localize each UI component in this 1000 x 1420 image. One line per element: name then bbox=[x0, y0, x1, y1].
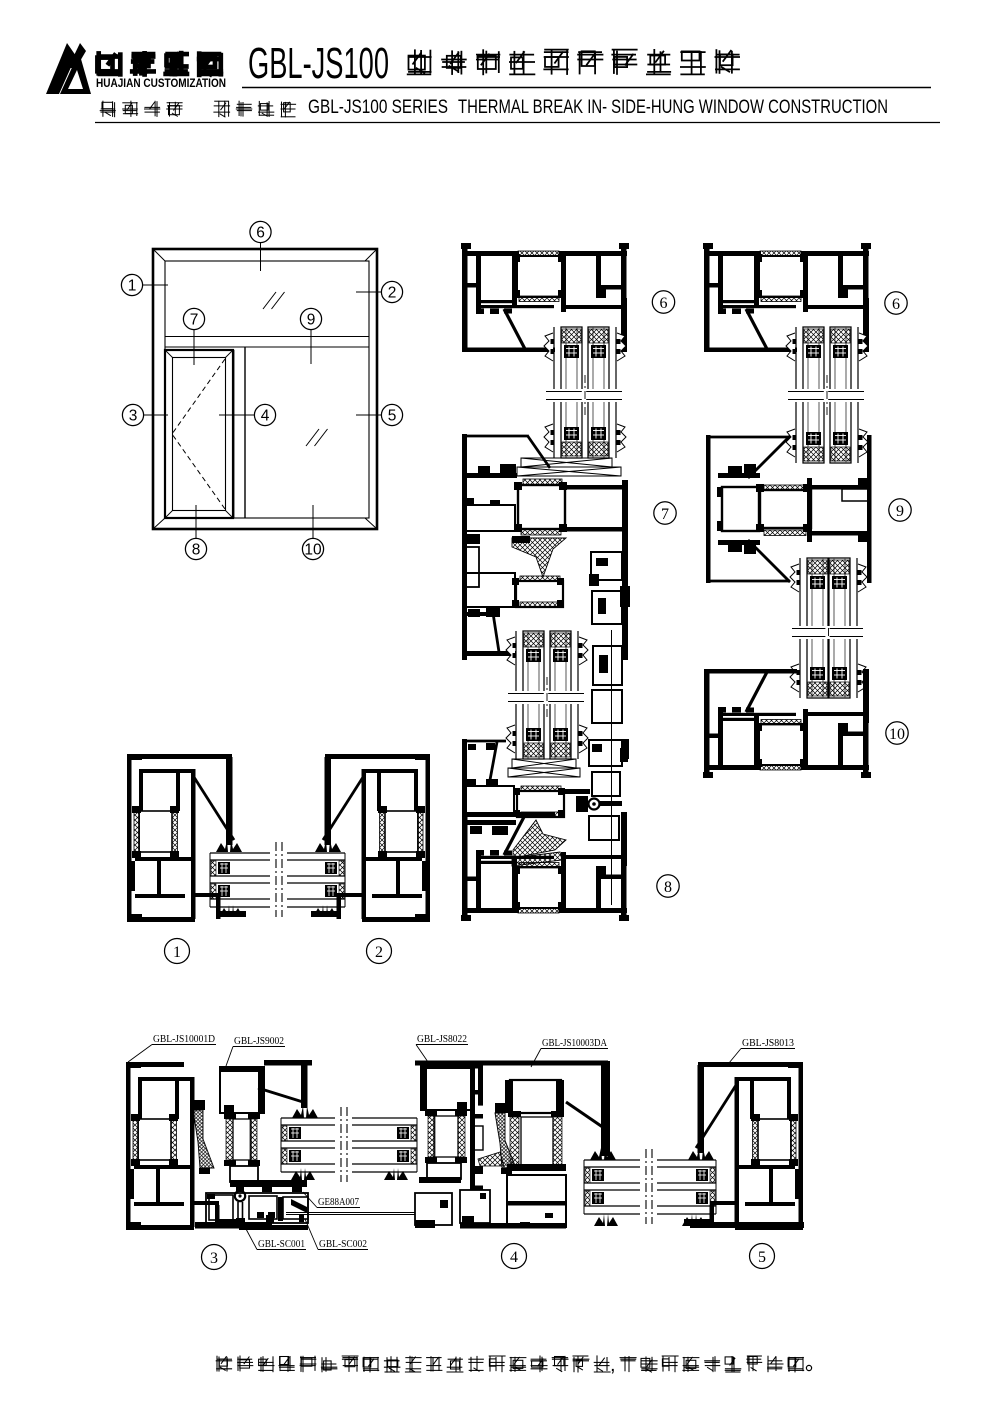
svg-text:GBL-JS9002: GBL-JS9002 bbox=[234, 1036, 284, 1047]
svg-text:5: 5 bbox=[758, 1249, 766, 1266]
svg-text:6: 6 bbox=[256, 224, 265, 241]
svg-text:3: 3 bbox=[210, 1250, 218, 1267]
svg-text:2: 2 bbox=[388, 284, 397, 301]
svg-text:4: 4 bbox=[261, 407, 270, 424]
svg-text:GBL-JS8022: GBL-JS8022 bbox=[417, 1034, 467, 1045]
svg-text:GBL-JS10003DA: GBL-JS10003DA bbox=[542, 1038, 607, 1049]
svg-text:,: , bbox=[610, 1354, 616, 1376]
svg-text:GBL-JS100 SERIES: GBL-JS100 SERIES bbox=[308, 97, 448, 118]
svg-text:10: 10 bbox=[304, 541, 322, 558]
svg-text:8: 8 bbox=[192, 541, 201, 558]
svg-text:2: 2 bbox=[375, 944, 383, 961]
svg-text:8: 8 bbox=[664, 879, 672, 896]
svg-text:5: 5 bbox=[388, 407, 397, 424]
svg-text:4: 4 bbox=[510, 1249, 518, 1266]
svg-text:GE88A007: GE88A007 bbox=[318, 1197, 359, 1208]
svg-text:GBL-JS100: GBL-JS100 bbox=[248, 39, 389, 88]
svg-text:GBL-JS8013: GBL-JS8013 bbox=[742, 1038, 794, 1049]
svg-text:1: 1 bbox=[173, 944, 181, 961]
svg-text:1: 1 bbox=[128, 277, 137, 294]
svg-text:3: 3 bbox=[129, 407, 138, 424]
svg-text:GBL-SC001: GBL-SC001 bbox=[258, 1239, 305, 1250]
svg-text:HUAJIAN CUSTOMIZATION: HUAJIAN CUSTOMIZATION bbox=[96, 78, 226, 90]
svg-text:10: 10 bbox=[889, 726, 905, 743]
svg-text:THERMAL BREAK IN- SIDE-HUNG WI: THERMAL BREAK IN- SIDE-HUNG WINDOW CONST… bbox=[458, 97, 888, 118]
svg-text:7: 7 bbox=[190, 311, 199, 328]
svg-text:9: 9 bbox=[307, 311, 316, 328]
svg-text:6: 6 bbox=[660, 295, 668, 312]
svg-text:6: 6 bbox=[892, 296, 900, 313]
svg-text:GBL-SC002: GBL-SC002 bbox=[319, 1239, 367, 1250]
svg-text:GBL-JS10001D: GBL-JS10001D bbox=[153, 1034, 215, 1045]
svg-text:9: 9 bbox=[896, 503, 904, 520]
svg-text:7: 7 bbox=[661, 506, 669, 523]
